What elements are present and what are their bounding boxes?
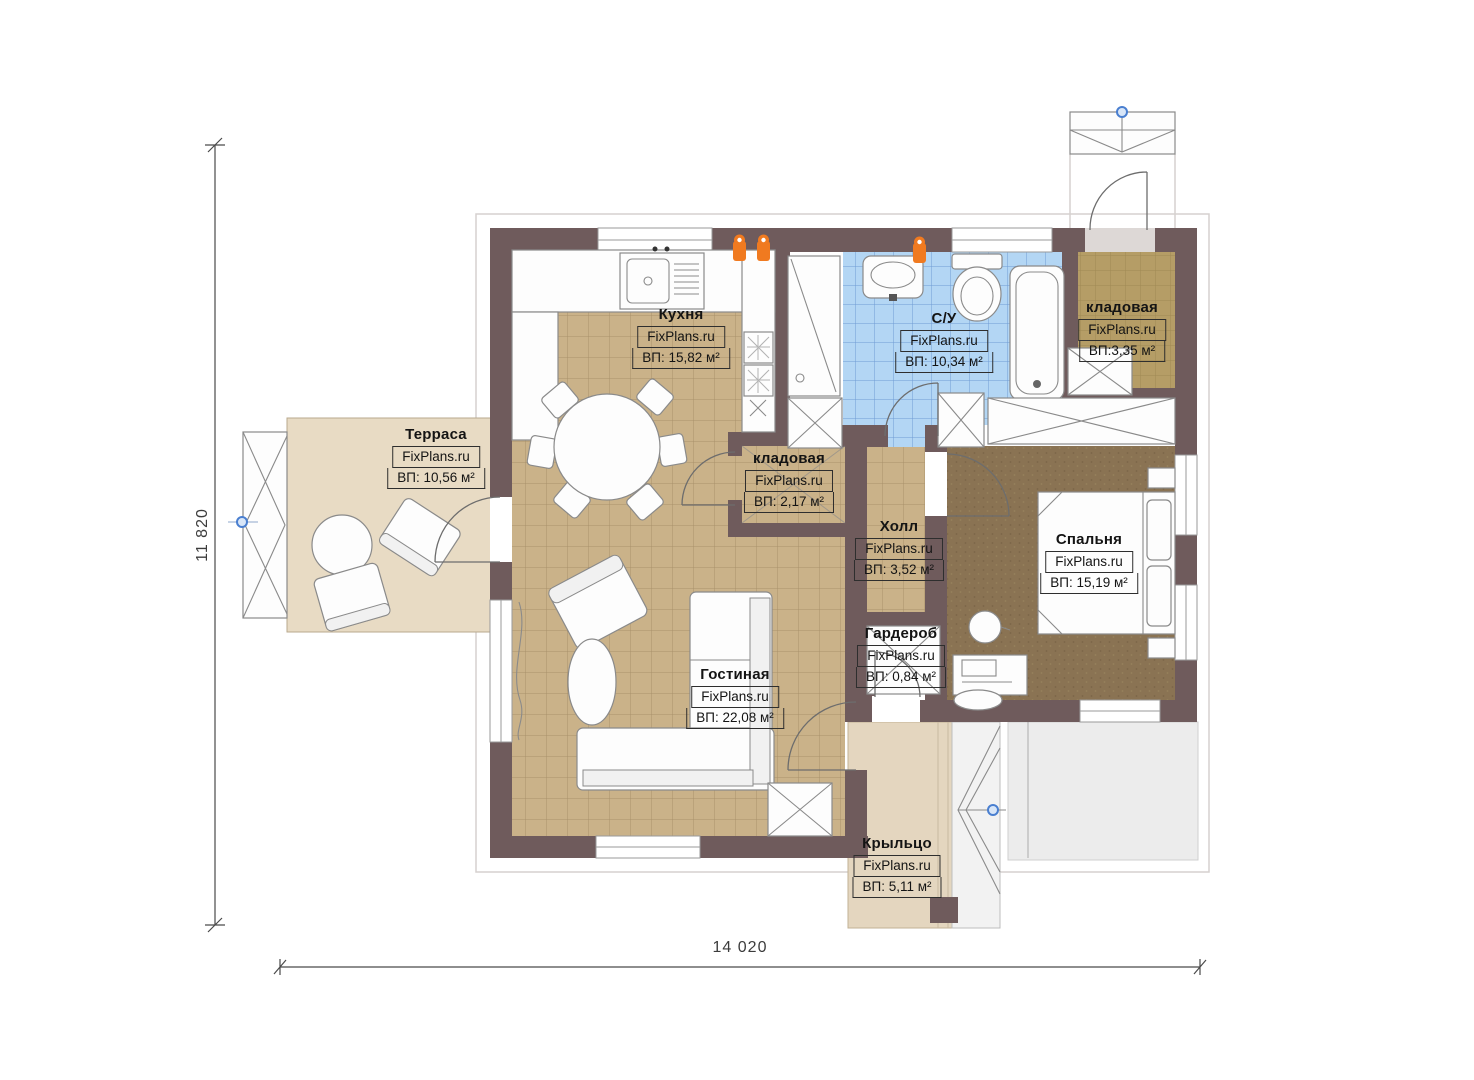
boiler-icon (757, 235, 770, 262)
room-area: ВП: 2,17 м² (744, 492, 834, 513)
room-name: Гостиная (700, 666, 769, 683)
room-area: ВП: 10,56 м² (387, 468, 485, 489)
entry-canopy-guides (1070, 154, 1175, 228)
room-area: ВП: 22,08 м² (686, 708, 784, 729)
porch-stairs (952, 722, 1000, 928)
dimension-line-horizontal (274, 959, 1206, 975)
dining-chair (527, 435, 558, 469)
room-name: Крыльцо (862, 835, 932, 852)
room-area: ВП: 0,84 м² (856, 667, 946, 688)
terrace-door-opening (490, 497, 512, 562)
room-area: ВП: 5,11 м² (852, 877, 941, 898)
brand-label: FixPlans.ru (745, 470, 833, 492)
entry-threshold (1085, 228, 1155, 252)
floor-plan: Кухня FixPlans.ru ВП: 15,82 м² Терраса F… (0, 0, 1474, 1080)
room-label-living: Гостиная FixPlans.ru ВП: 22,08 м² (686, 666, 784, 729)
nightstand (1148, 468, 1175, 488)
wall-segment (490, 836, 596, 858)
room-name: Холл (880, 518, 918, 535)
room-label-storage-small: кладовая FixPlans.ru ВП: 2,17 м² (744, 450, 834, 513)
room-label-porch: Крыльцо FixPlans.ru ВП: 5,11 м² (852, 835, 941, 898)
washbasin (863, 256, 923, 301)
porch-column (930, 897, 958, 923)
brand-label: FixPlans.ru (637, 326, 725, 348)
room-label-wardrobe: Гардероб FixPlans.ru ВП: 0,84 м² (856, 625, 946, 688)
vent-box (788, 398, 842, 448)
wall-segment (845, 694, 875, 722)
dimension-width-label: 14 020 (713, 939, 768, 957)
marker-dot (988, 805, 998, 815)
entry-canopy (1070, 112, 1175, 154)
room-label-kitchen: Кухня FixPlans.ru ВП: 15,82 м² (632, 306, 730, 369)
wall-segment (700, 836, 868, 858)
wall-segment (728, 446, 742, 456)
room-name: кладовая (1086, 299, 1158, 316)
wall-segment (490, 228, 512, 497)
wardrobe-cabinet (988, 398, 1175, 444)
brand-label: FixPlans.ru (857, 645, 945, 667)
room-label-bedroom: Спальня FixPlans.ru ВП: 15,19 м² (1040, 531, 1138, 594)
brand-label: FixPlans.ru (691, 686, 779, 708)
wall-segment (490, 562, 512, 600)
floor-plan-drawing (0, 0, 1474, 1080)
room-name: Кухня (659, 306, 704, 323)
brand-label: FixPlans.ru (1045, 551, 1133, 573)
wall-segment (840, 425, 888, 447)
brand-label: FixPlans.ru (853, 855, 941, 877)
vent-box (768, 783, 832, 836)
dining-chair (657, 433, 688, 467)
room-name: С/У (932, 310, 957, 327)
wall-segment (728, 523, 845, 537)
room-area: ВП: 15,82 м² (632, 348, 730, 369)
entry-door-top (1090, 172, 1147, 230)
wall-segment (845, 612, 940, 626)
wall-segment (1175, 535, 1197, 585)
room-label-bathroom: С/У FixPlans.ru ВП: 10,34 м² (895, 310, 993, 373)
boiler-icon (733, 235, 746, 262)
wall-segment (1052, 228, 1085, 252)
terrace-canopy (243, 432, 287, 618)
room-label-terrace: Терраса FixPlans.ru ВП: 10,56 м² (387, 426, 485, 489)
vent-box (938, 393, 984, 447)
room-area: ВП: 10,34 м² (895, 352, 993, 373)
coffee-table (568, 639, 616, 725)
nightstand (1148, 638, 1175, 658)
room-label-hall: Холл FixPlans.ru ВП: 3,52 м² (854, 518, 944, 581)
marker-dot (237, 517, 247, 527)
brand-label: FixPlans.ru (855, 538, 943, 560)
dimension-height-label: 11 820 (194, 508, 212, 562)
patio-area (1008, 722, 1198, 860)
room-name: Спальня (1056, 531, 1122, 548)
kitchen-sink (620, 247, 704, 310)
bathtub (1010, 266, 1064, 400)
desk-chair (954, 690, 1002, 710)
room-area: ВП:3,35 м² (1079, 341, 1165, 362)
boiler-icon (913, 237, 926, 264)
room-name: Терраса (405, 426, 467, 443)
room-label-storage-top: кладовая FixPlans.ru ВП:3,35 м² (1078, 299, 1166, 362)
front-door-opening (872, 696, 920, 722)
room-area: ВП: 15,19 м² (1040, 573, 1138, 594)
shower (788, 256, 840, 396)
wall-segment (1175, 228, 1197, 455)
brand-label: FixPlans.ru (1078, 319, 1166, 341)
room-area: ВП: 3,52 м² (854, 560, 944, 581)
brand-label: FixPlans.ru (900, 330, 988, 352)
room-name: кладовая (753, 450, 825, 467)
desk (953, 655, 1027, 695)
wall-segment (1160, 700, 1197, 722)
room-name: Гардероб (865, 625, 938, 642)
marker-dot (1117, 107, 1127, 117)
wall-segment (845, 770, 867, 836)
brand-label: FixPlans.ru (392, 446, 480, 468)
wall-segment (728, 500, 742, 523)
